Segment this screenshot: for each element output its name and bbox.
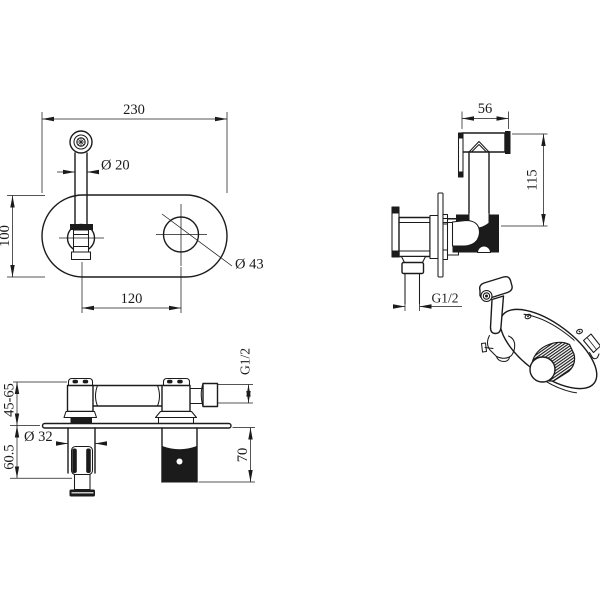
mixer-knob-3d (530, 342, 575, 382)
drawing-sheet: 230 Ø 20 100 120 Ø 43 (0, 0, 600, 600)
dim-label-handle-depth: 60.5 (2, 444, 18, 469)
wall-plate-side (438, 193, 443, 277)
dim-outlet-thread-section: G1/2 (218, 348, 253, 403)
mixer-body-side (392, 207, 459, 260)
dim-label-center-spacing: 120 (121, 291, 143, 307)
mixer-bar-section (64, 379, 218, 424)
front-view: 230 Ø 20 100 120 Ø 43 (0, 102, 264, 313)
dim-label-sprayer-height: 115 (525, 169, 541, 190)
dim-label-spout-depth: 70 (235, 448, 251, 463)
trim-handle-3d (584, 334, 600, 359)
dim-hole-diameter: Ø 43 (162, 214, 264, 273)
dim-plate-height: 100 (0, 196, 45, 278)
sprayer-side (459, 131, 511, 226)
dim-center-spacing: 120 (82, 262, 181, 313)
dim-tube-diameter: Ø 20 (57, 158, 130, 174)
wall-plate-section (43, 424, 232, 429)
dim-label-tube-diameter: Ø 20 (101, 158, 130, 174)
dim-label-valve-diameter: Ø 32 (24, 429, 53, 445)
side-view: 56 115 G1/2 (392, 101, 548, 311)
spout-hole (156, 204, 207, 266)
dim-label-wall-depth-range: 45-65 (2, 383, 18, 417)
dim-spout-depth: 70 (199, 428, 256, 483)
handle-below-wall (68, 428, 95, 497)
dim-label-plate-width: 230 (123, 102, 145, 118)
dim-label-outlet-thread-section: G1/2 (238, 348, 253, 375)
dim-label-outlet-thread-side: G1/2 (432, 291, 459, 306)
dim-wall-depth-range: 45-65 (2, 382, 68, 426)
dim-head-width: 56 (462, 101, 509, 129)
spout-below-wall (162, 428, 197, 482)
dim-label-hole-diameter: Ø 43 (235, 257, 264, 273)
perspective-view (480, 277, 600, 408)
sprayer-3d (480, 277, 512, 334)
outlet-spout-side (402, 257, 426, 304)
sprayer-holder-3d (482, 336, 515, 362)
dim-label-plate-height: 100 (0, 225, 13, 247)
plate-screw-right (576, 329, 583, 335)
technical-drawing: 230 Ø 20 100 120 Ø 43 (0, 0, 600, 600)
oval-escutcheon-plate (42, 195, 227, 277)
dim-plate-width: 230 (42, 102, 227, 193)
dim-outlet-thread-side: G1/2 (394, 291, 462, 312)
section-view: 45-65 60.5 Ø 32 G1/2 70 (2, 348, 256, 497)
dim-label-head-width: 56 (478, 101, 493, 117)
